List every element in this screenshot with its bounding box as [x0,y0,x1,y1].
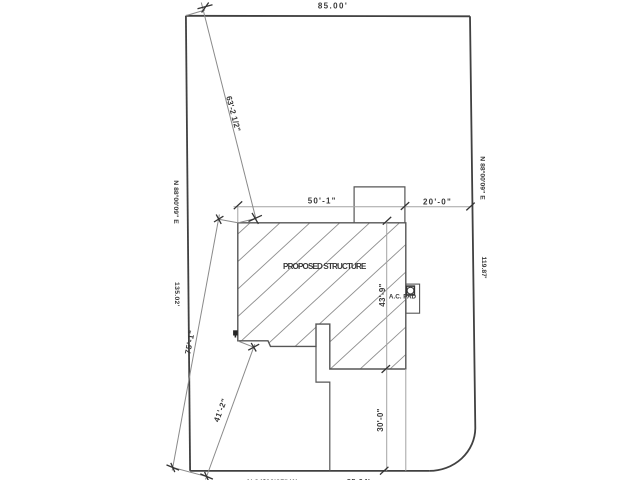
svg-text:PROPOSED STRUCTURE: PROPOSED STRUCTURE [283,262,367,271]
svg-text:135.02': 135.02' [173,282,180,307]
svg-text:A.C. PAD: A.C. PAD [389,293,417,300]
svg-text:119.87': 119.87' [480,256,487,278]
svg-text:N 88°00'09" E: N 88°00'09" E [172,180,180,224]
svg-text:43'-9": 43'-9" [378,283,387,307]
svg-text:85.00': 85.00' [318,1,348,10]
svg-text:30'-0": 30'-0" [376,408,385,432]
svg-text:N 88°00'09" E: N 88°00'09" E [478,156,486,200]
svg-text:20'-0": 20'-0" [423,198,452,207]
svg-text:50'-1": 50'-1" [308,196,337,205]
